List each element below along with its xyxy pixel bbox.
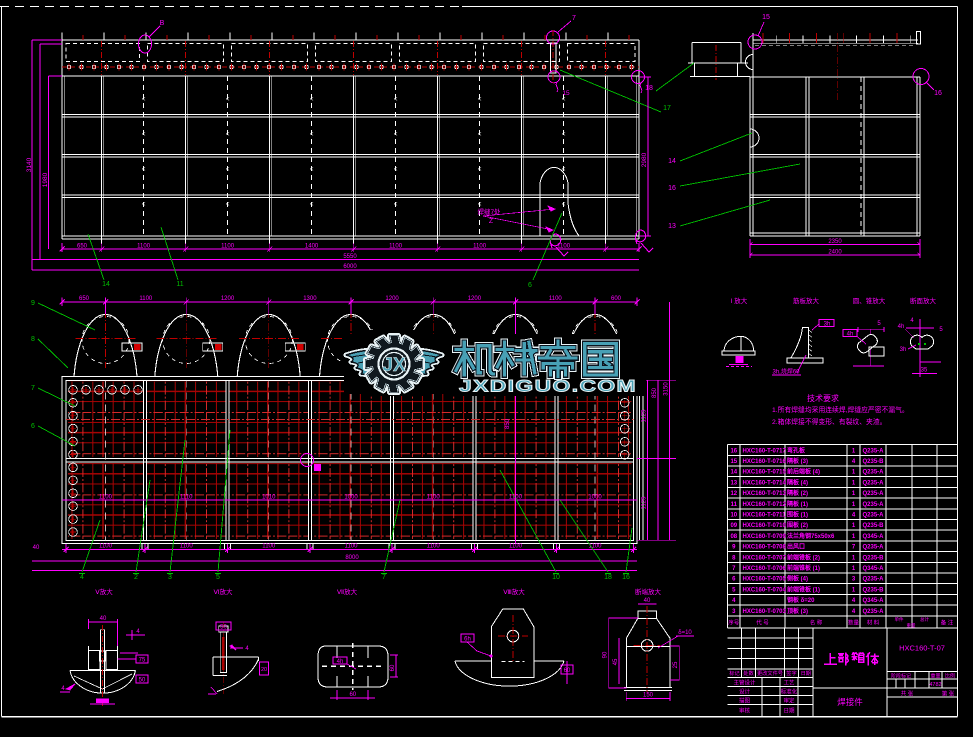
svg-text:更改文件号: 更改文件号 <box>757 669 783 677</box>
svg-text:日期: 日期 <box>783 708 795 715</box>
svg-text:Q235-A: Q235-A <box>862 609 884 615</box>
svg-text:6: 6 <box>528 282 532 289</box>
svg-text:7: 7 <box>382 574 386 581</box>
svg-text:1125: 1125 <box>642 409 648 423</box>
svg-text:圆、锥放大: 圆、锥放大 <box>853 296 886 305</box>
svg-text:筋板放大: 筋板放大 <box>793 296 820 305</box>
svg-text:11: 11 <box>176 281 183 288</box>
svg-text:3150: 3150 <box>664 382 670 396</box>
svg-text:HXC160-T-0709: HXC160-T-0709 <box>743 534 787 540</box>
svg-text:隔板 (4): 隔板 (4) <box>787 478 808 486</box>
svg-text:围板 (2): 围板 (2) <box>787 521 808 529</box>
svg-text:审核: 审核 <box>739 707 751 715</box>
svg-text:Z: Z <box>489 218 494 225</box>
svg-text:HXC160-T-0716: HXC160-T-0716 <box>743 459 787 465</box>
svg-text:<: < <box>142 97 146 103</box>
svg-text:75: 75 <box>139 658 146 664</box>
svg-text:13: 13 <box>668 223 676 230</box>
svg-text:主管设计: 主管设计 <box>733 679 756 687</box>
svg-text:JXDIGUO.COM: JXDIGUO.COM <box>459 378 637 396</box>
svg-text:1010: 1010 <box>262 495 276 501</box>
svg-text:技术要求: 技术要求 <box>807 393 839 403</box>
svg-text:08: 08 <box>730 534 737 540</box>
svg-text:1100: 1100 <box>345 544 359 550</box>
svg-text:HXC160-T-0712: HXC160-T-0712 <box>743 502 787 508</box>
svg-text:Q235-B: Q235-B <box>862 587 884 593</box>
svg-text:50: 50 <box>220 625 227 631</box>
svg-text:HXC160-T-0704: HXC160-T-0704 <box>743 587 787 593</box>
svg-text:<: < <box>310 132 314 138</box>
svg-text:850: 850 <box>652 387 658 398</box>
svg-text:1100: 1100 <box>509 544 523 550</box>
svg-text:15: 15 <box>562 90 570 97</box>
svg-text:600: 600 <box>611 296 622 302</box>
svg-text:B: B <box>160 20 165 27</box>
svg-text:1100: 1100 <box>221 244 235 250</box>
svg-text:1125: 1125 <box>642 496 648 510</box>
svg-text:3h: 3h <box>824 322 831 328</box>
svg-text:HXC160-T-0705: HXC160-T-0705 <box>743 577 787 583</box>
svg-text:重量: 重量 <box>907 622 916 629</box>
svg-text:1000: 1000 <box>588 495 602 501</box>
svg-text:150: 150 <box>643 693 654 699</box>
svg-text:20: 20 <box>261 667 267 673</box>
svg-text:隔板 (1): 隔板 (1) <box>787 500 808 508</box>
svg-text:1980: 1980 <box>42 172 49 187</box>
svg-text:3h: 3h <box>900 347 907 353</box>
svg-text:前后端板 (4): 前后端板 (4) <box>787 468 820 476</box>
svg-text:3140: 3140 <box>26 157 33 172</box>
svg-text:HXC160-T-07: HXC160-T-07 <box>899 644 945 653</box>
svg-text:断面放大: 断面放大 <box>910 296 937 305</box>
svg-text:<: < <box>142 202 146 208</box>
svg-text:<: < <box>478 132 482 138</box>
svg-text:3h,烧焊60: 3h,烧焊60 <box>772 368 800 376</box>
svg-text:Q235-A: Q235-A <box>862 470 884 476</box>
svg-text:1200: 1200 <box>221 296 235 302</box>
svg-text:<: < <box>226 167 230 173</box>
svg-text:Ⅷ放大: Ⅷ放大 <box>503 587 525 596</box>
svg-text:总计: 总计 <box>920 616 929 623</box>
svg-text:<: < <box>226 202 230 208</box>
svg-text:HXC160-T-0713: HXC160-T-0713 <box>743 491 787 497</box>
svg-text:数量: 数量 <box>848 619 860 627</box>
svg-text:1100: 1100 <box>549 296 563 302</box>
svg-text:<: < <box>394 97 398 103</box>
svg-text:40: 40 <box>100 616 107 622</box>
svg-text:1100: 1100 <box>427 495 441 501</box>
svg-text:签字: 签字 <box>786 669 796 677</box>
svg-text:40: 40 <box>33 545 40 551</box>
svg-text:50: 50 <box>139 678 146 684</box>
svg-text:16: 16 <box>730 448 737 454</box>
svg-text:Q235-B: Q235-B <box>862 523 884 529</box>
svg-text:断端放大: 断端放大 <box>635 587 662 596</box>
svg-text:1100: 1100 <box>389 244 403 250</box>
svg-text:围板 (1): 围板 (1) <box>787 510 808 518</box>
svg-text:序号: 序号 <box>728 619 740 627</box>
svg-text:<: < <box>394 167 398 173</box>
svg-text:阶段标记: 阶段标记 <box>891 673 911 680</box>
svg-text:40: 40 <box>644 598 651 604</box>
svg-text:1110: 1110 <box>180 495 193 501</box>
svg-text:单件: 单件 <box>895 616 904 623</box>
svg-text:设计: 设计 <box>739 688 751 696</box>
svg-text:18: 18 <box>645 85 653 92</box>
svg-text:1100: 1100 <box>473 244 487 250</box>
svg-text:HXC160-T-0703: HXC160-T-0703 <box>743 609 787 615</box>
svg-text:2400: 2400 <box>828 250 842 256</box>
svg-text:HXC160-T-0711: HXC160-T-0711 <box>743 512 787 518</box>
svg-text:09: 09 <box>730 523 737 529</box>
svg-text:8: 8 <box>31 336 35 343</box>
svg-text:16: 16 <box>668 185 676 192</box>
svg-text:共 张: 共 张 <box>901 690 914 698</box>
svg-text:12: 12 <box>730 491 737 497</box>
svg-text:2350: 2350 <box>828 239 842 245</box>
svg-text:δ=10: δ=10 <box>678 630 692 636</box>
svg-text:重量: 重量 <box>930 673 940 680</box>
svg-text:出风口: 出风口 <box>787 543 805 551</box>
svg-text:Q345-A: Q345-A <box>862 566 884 572</box>
svg-text:650: 650 <box>77 244 88 250</box>
svg-text:1000: 1000 <box>344 495 358 501</box>
svg-text:<: < <box>226 132 230 138</box>
svg-text:侧板 (4): 侧板 (4) <box>787 575 808 583</box>
svg-text:<: < <box>562 97 566 103</box>
svg-text:钢板 δ=20: 钢板 δ=20 <box>787 596 815 604</box>
svg-text:名 称: 名 称 <box>810 619 823 627</box>
svg-text:16: 16 <box>934 90 942 97</box>
svg-text:4782: 4782 <box>929 682 941 688</box>
svg-text:HXC160-T-0710: HXC160-T-0710 <box>743 523 787 529</box>
svg-text:1100: 1100 <box>99 544 113 550</box>
svg-text:弯孔板: 弯孔板 <box>787 446 806 454</box>
svg-text:4: 4 <box>80 574 84 581</box>
svg-text:Q235-B: Q235-B <box>862 459 884 465</box>
svg-text:<: < <box>310 167 314 173</box>
svg-text:6000: 6000 <box>343 264 357 270</box>
svg-text:Ⅴ放大: Ⅴ放大 <box>95 587 113 596</box>
svg-text:4h: 4h <box>847 332 854 338</box>
svg-text:1100: 1100 <box>262 544 276 550</box>
svg-text:6h: 6h <box>464 637 471 643</box>
svg-text:2980: 2980 <box>641 152 648 167</box>
svg-text:1200: 1200 <box>468 296 482 302</box>
svg-text:1200: 1200 <box>385 296 399 302</box>
svg-text:HXC160-T-0706: HXC160-T-0706 <box>743 566 787 572</box>
svg-text:材 料: 材 料 <box>867 619 880 627</box>
svg-text:18: 18 <box>604 574 612 581</box>
svg-text:15: 15 <box>762 14 770 21</box>
svg-text:1100: 1100 <box>137 244 151 250</box>
svg-text:90: 90 <box>603 651 609 658</box>
svg-text:10: 10 <box>552 574 560 581</box>
svg-text:Q235-B: Q235-B <box>862 555 884 561</box>
svg-text:1100: 1100 <box>99 495 113 501</box>
svg-text:1100: 1100 <box>180 544 194 550</box>
svg-text:25: 25 <box>673 661 679 668</box>
svg-text:日期: 日期 <box>801 670 811 677</box>
svg-text:Q235-A: Q235-A <box>862 448 884 454</box>
svg-text:顶板 (3): 顶板 (3) <box>787 607 808 615</box>
svg-text:5550: 5550 <box>343 254 357 260</box>
svg-text:<: < <box>310 202 314 208</box>
svg-text:Q235-A: Q235-A <box>862 502 884 508</box>
svg-text:HXC160-T-0717: HXC160-T-0717 <box>743 448 787 454</box>
svg-text:4h: 4h <box>337 659 344 665</box>
svg-text:1100: 1100 <box>139 296 153 302</box>
svg-text:650: 650 <box>79 296 90 302</box>
svg-text:7: 7 <box>572 15 576 22</box>
svg-text:45: 45 <box>613 658 619 665</box>
svg-text:HXC160-T-0708: HXC160-T-0708 <box>743 545 787 551</box>
svg-text:15: 15 <box>730 459 737 465</box>
svg-text:5: 5 <box>216 574 220 581</box>
svg-text:第 张: 第 张 <box>942 690 955 698</box>
svg-text:标准化: 标准化 <box>781 688 798 696</box>
svg-text:Q235-A: Q235-A <box>862 577 884 583</box>
svg-text:前端锥板 (1): 前端锥板 (1) <box>787 585 820 593</box>
svg-text:1400: 1400 <box>305 244 319 250</box>
svg-text:I 放大: I 放大 <box>731 296 748 305</box>
svg-text:隔板 (3): 隔板 (3) <box>787 457 808 465</box>
svg-text:14: 14 <box>102 281 110 288</box>
svg-text:<: < <box>478 97 482 103</box>
svg-text:4h: 4h <box>898 324 905 330</box>
svg-text:HXC160-T-0715: HXC160-T-0715 <box>743 470 787 476</box>
svg-text:60: 60 <box>349 692 356 698</box>
svg-text:Q235-A: Q235-A <box>862 491 884 497</box>
svg-text:<: < <box>562 132 566 138</box>
svg-text:标记: 标记 <box>729 669 739 677</box>
svg-text:3: 3 <box>168 574 172 581</box>
svg-text:Q345-A: Q345-A <box>862 534 884 540</box>
svg-text:<: < <box>142 167 146 173</box>
svg-text:Q235-A: Q235-A <box>862 480 884 486</box>
svg-text:审定: 审定 <box>783 697 795 705</box>
svg-text:2: 2 <box>134 574 138 581</box>
svg-text:焊接件: 焊接件 <box>837 697 863 707</box>
svg-text:隔板 (2): 隔板 (2) <box>787 489 808 497</box>
svg-text:<: < <box>478 202 482 208</box>
svg-text:1.所有焊缝均采用连续焊,焊缝应严密不漏气。: 1.所有焊缝均采用连续焊,焊缝应严密不漏气。 <box>772 405 909 414</box>
svg-text:1300: 1300 <box>303 296 317 302</box>
svg-text:7: 7 <box>31 385 35 392</box>
svg-text:850: 850 <box>505 418 511 429</box>
svg-text:HXC160-T-0714: HXC160-T-0714 <box>743 480 787 486</box>
svg-text:<: < <box>478 167 482 173</box>
svg-text:10: 10 <box>730 512 737 518</box>
svg-text:Ⅵ放大: Ⅵ放大 <box>214 587 233 596</box>
svg-text:8000: 8000 <box>345 555 359 561</box>
svg-text:<: < <box>394 132 398 138</box>
svg-text:描图: 描图 <box>739 697 751 705</box>
svg-text:<: < <box>142 132 146 138</box>
svg-text:代 号: 代 号 <box>756 619 769 627</box>
svg-text:17: 17 <box>663 105 671 112</box>
svg-text:9: 9 <box>31 300 35 307</box>
svg-text:60: 60 <box>390 664 396 671</box>
svg-text:备 注: 备 注 <box>941 619 954 627</box>
svg-text:16: 16 <box>622 574 630 581</box>
svg-text:1100: 1100 <box>557 244 571 250</box>
svg-text:Ⅶ放大: Ⅶ放大 <box>337 587 358 596</box>
svg-text:HXC160-T-0707: HXC160-T-0707 <box>743 555 787 561</box>
svg-text:13: 13 <box>730 480 737 486</box>
svg-text:14: 14 <box>668 158 676 165</box>
svg-text:JX: JX <box>382 355 406 376</box>
svg-text:Q235-A: Q235-A <box>862 545 884 551</box>
svg-text:<: < <box>562 202 566 208</box>
svg-text:6: 6 <box>31 423 35 430</box>
svg-text:14: 14 <box>730 470 737 476</box>
svg-text:法兰角钢75x50x6: 法兰角钢75x50x6 <box>787 532 835 540</box>
svg-text:<: < <box>394 202 398 208</box>
svg-text:Q235-A: Q235-A <box>862 512 884 518</box>
svg-text:11: 11 <box>731 502 738 508</box>
svg-text:Q345-A: Q345-A <box>862 598 884 604</box>
svg-text:前端锥板 (1): 前端锥板 (1) <box>787 564 820 572</box>
svg-text:2.箱体焊接不得变形、有裂纹、夹渣。: 2.箱体焊接不得变形、有裂纹、夹渣。 <box>772 417 886 426</box>
svg-text:比例: 比例 <box>945 673 955 680</box>
svg-text:1100: 1100 <box>427 544 441 550</box>
svg-text:处数: 处数 <box>743 669 754 677</box>
svg-text:<: < <box>310 97 314 103</box>
svg-text:35: 35 <box>921 368 928 374</box>
svg-text:工艺: 工艺 <box>783 680 795 687</box>
svg-text:前端锥板 (2): 前端锥板 (2) <box>787 553 820 561</box>
svg-text:<: < <box>226 97 230 103</box>
